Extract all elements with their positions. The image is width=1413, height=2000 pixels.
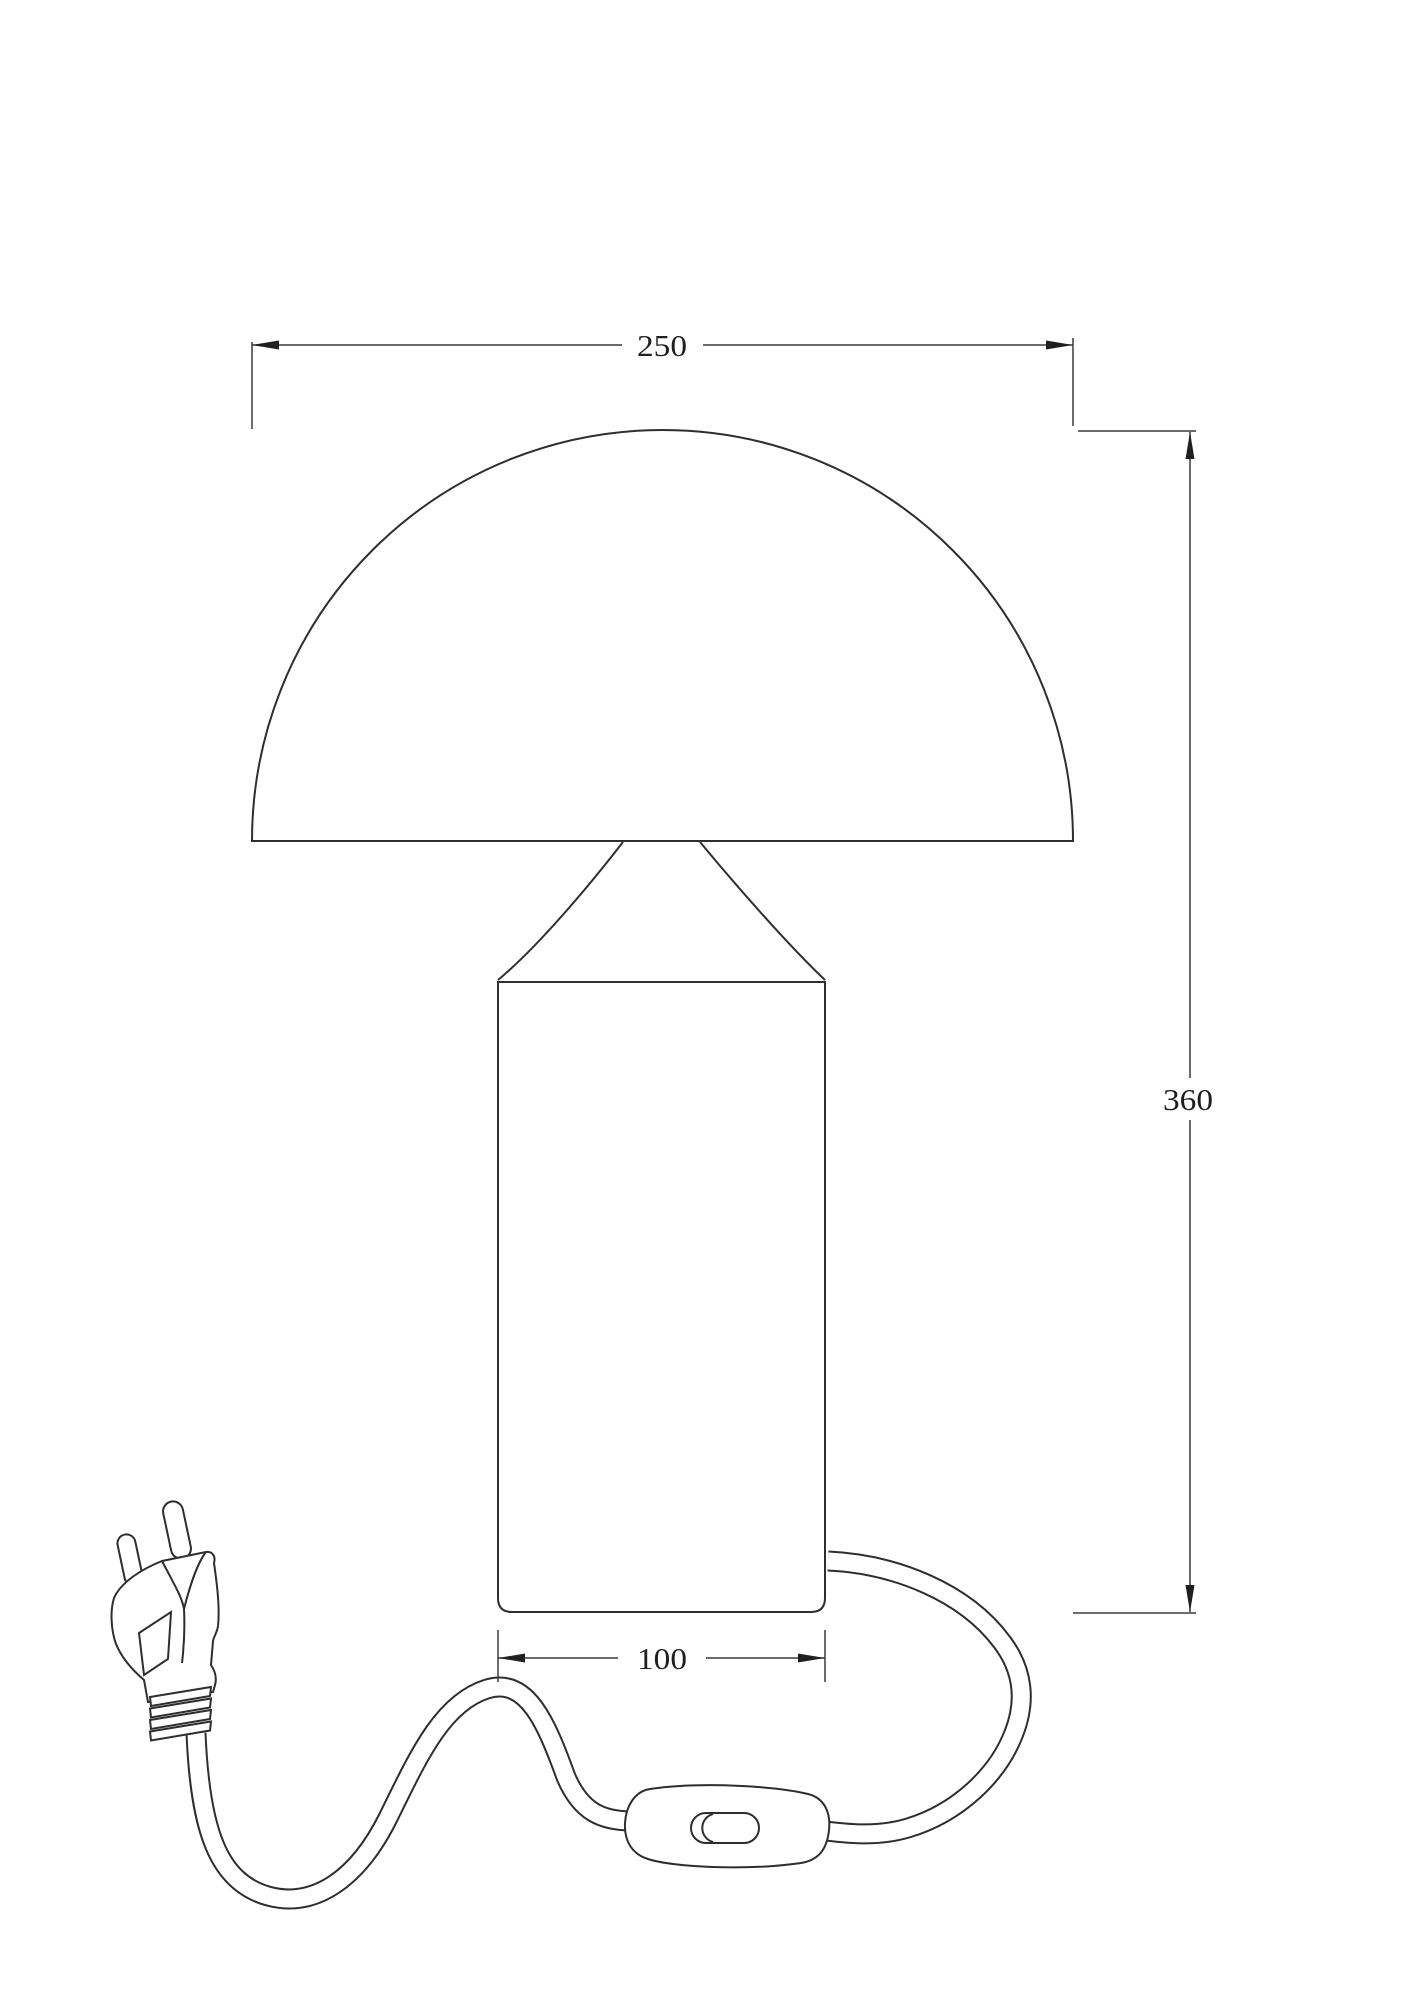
- dim-360-arrow-up: [1186, 432, 1195, 459]
- dim-100-label: 100: [637, 1641, 687, 1676]
- dim-250-arrow-left: [252, 341, 279, 350]
- dimension-base-width: 100: [498, 1630, 825, 1682]
- dim-250-label: 250: [637, 328, 687, 363]
- power-plug: [112, 1500, 219, 1741]
- table-lamp: [252, 430, 1073, 1612]
- cable-right-loop-outline: [818, 1561, 1021, 1834]
- switch-rocker-slot: [691, 1813, 759, 1843]
- plug-pin-right: [161, 1500, 193, 1561]
- plug-strain-relief-ribs: [150, 1687, 211, 1741]
- lamp-body-cylinder: [498, 982, 825, 1612]
- dim-360-label: 360: [1163, 1082, 1213, 1117]
- cable-left-segment-core: [196, 1687, 632, 1899]
- lamp-neck-cone-left-edge: [498, 842, 623, 980]
- dim-250-arrow-right: [1046, 341, 1073, 350]
- lamp-neck-cone-right-edge: [700, 842, 825, 980]
- lamp-dimension-drawing: 250 360 100: [0, 0, 1413, 2000]
- dimension-shade-diameter: 250: [252, 328, 1073, 429]
- cable-right-loop-core: [818, 1561, 1021, 1834]
- lamp-shade-dome: [252, 430, 1073, 841]
- inline-switch: [625, 1785, 829, 1867]
- drawing-canvas: 250 360 100: [0, 0, 1413, 2000]
- dimension-total-height: 360: [1073, 431, 1213, 1613]
- dim-100-arrow-right: [798, 1654, 825, 1663]
- dim-100-arrow-left: [498, 1654, 525, 1663]
- dim-360-arrow-down: [1186, 1585, 1195, 1612]
